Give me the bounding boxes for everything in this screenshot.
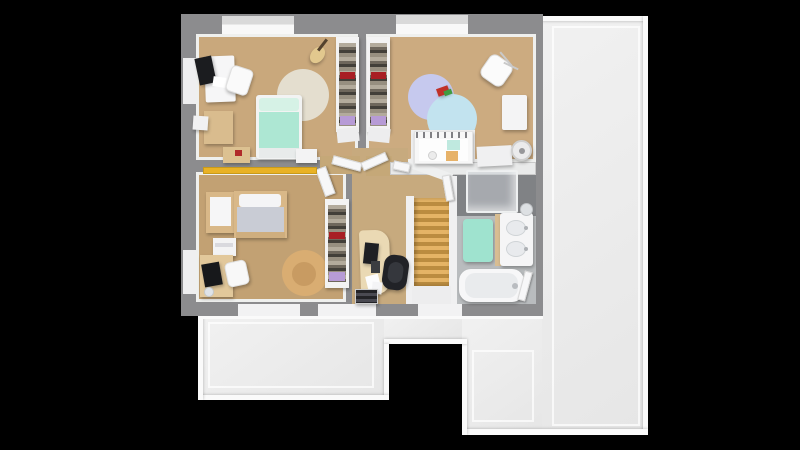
roof-ridge-top xyxy=(540,16,648,21)
master-desk-globe xyxy=(204,287,214,297)
nursery-wardrobe-clothes xyxy=(370,43,387,126)
window-sill-left-2 xyxy=(183,250,196,294)
window-sill-bottom-1 xyxy=(238,304,300,316)
master-bed-footboard xyxy=(236,232,285,238)
teen-wall-speaker xyxy=(193,115,209,130)
teen-side-table xyxy=(296,149,317,163)
teen-wardrobe-clothes xyxy=(339,43,356,126)
teen-nightstand-item xyxy=(235,150,242,156)
nursery-fan-hub xyxy=(519,148,525,154)
floor-plan-stage xyxy=(0,0,800,450)
teen-wardrobe-boxes xyxy=(340,116,355,125)
roof-ridge-notch-left xyxy=(384,344,389,400)
bathtub-faucet xyxy=(512,283,518,289)
teen-wardrobe-red-cloth xyxy=(340,72,355,79)
sink-basin-2 xyxy=(506,241,526,257)
vanity-round-mirror xyxy=(520,203,533,216)
crib-orange-cushion xyxy=(446,151,458,161)
crib-slat-rail xyxy=(416,132,471,138)
roof-ridge-left xyxy=(198,314,203,400)
master-wardrobe-boxes xyxy=(329,272,345,281)
window-sill-left-1 xyxy=(183,58,196,104)
crib-interior xyxy=(419,139,468,161)
bath-mat xyxy=(463,219,493,262)
master-yellow-shelf xyxy=(203,167,317,174)
office-low-shelf xyxy=(355,289,378,304)
roof-ridge-under-wall xyxy=(198,316,543,319)
teen-bed-pillow xyxy=(259,98,299,111)
window-sill-bottom-3 xyxy=(418,304,462,316)
roof-ridge-right xyxy=(643,16,648,435)
wardrobe-base-left xyxy=(336,127,359,143)
crib-round-toy xyxy=(428,151,437,160)
staircase-treads xyxy=(414,198,449,286)
master-bench-cushion xyxy=(210,197,231,226)
bathtub-inner xyxy=(465,273,518,298)
master-nightstand xyxy=(213,238,236,256)
master-nightstand-drawer xyxy=(215,243,233,247)
master-rug-shading xyxy=(292,262,316,286)
staircase-landing xyxy=(412,286,451,304)
master-wardrobe-clothes xyxy=(328,205,346,282)
teen-bed-footboard xyxy=(259,148,299,158)
sink-faucet-1 xyxy=(524,226,528,230)
master-bed-duvet xyxy=(237,207,284,233)
roof-ridge-notch-right xyxy=(462,344,467,435)
roof-inset-line-bottom-right xyxy=(472,350,534,422)
nursery-white-chest xyxy=(477,145,513,167)
roof-inset-line-bottom-left xyxy=(208,322,374,388)
roof-ridge-bottom-left xyxy=(198,395,389,400)
nursery-wardrobe-boxes xyxy=(371,116,386,125)
office-keyboard xyxy=(371,261,380,273)
sink-basin-1 xyxy=(506,220,526,236)
master-bed-pillow xyxy=(239,194,281,207)
roof-ridge-bottom-right xyxy=(462,429,648,435)
sink-faucet-2 xyxy=(524,247,528,251)
roof-inset-line-right xyxy=(552,26,640,426)
window-sill-bottom-2 xyxy=(318,304,376,316)
teen-bed-duvet xyxy=(259,112,299,148)
wardrobe-base-right xyxy=(367,127,390,143)
roof-ridge-notch-top xyxy=(384,339,467,344)
floor-plan-scene xyxy=(0,0,800,450)
master-wardrobe-red-cloth xyxy=(329,232,345,239)
nursery-wardrobe-red-cloth xyxy=(371,72,386,79)
crib-mint-blanket xyxy=(447,140,460,150)
master-desk-monitor xyxy=(201,262,223,288)
shower-glass-enclosure xyxy=(466,170,518,213)
nursery-wall-cabinet xyxy=(502,95,527,130)
